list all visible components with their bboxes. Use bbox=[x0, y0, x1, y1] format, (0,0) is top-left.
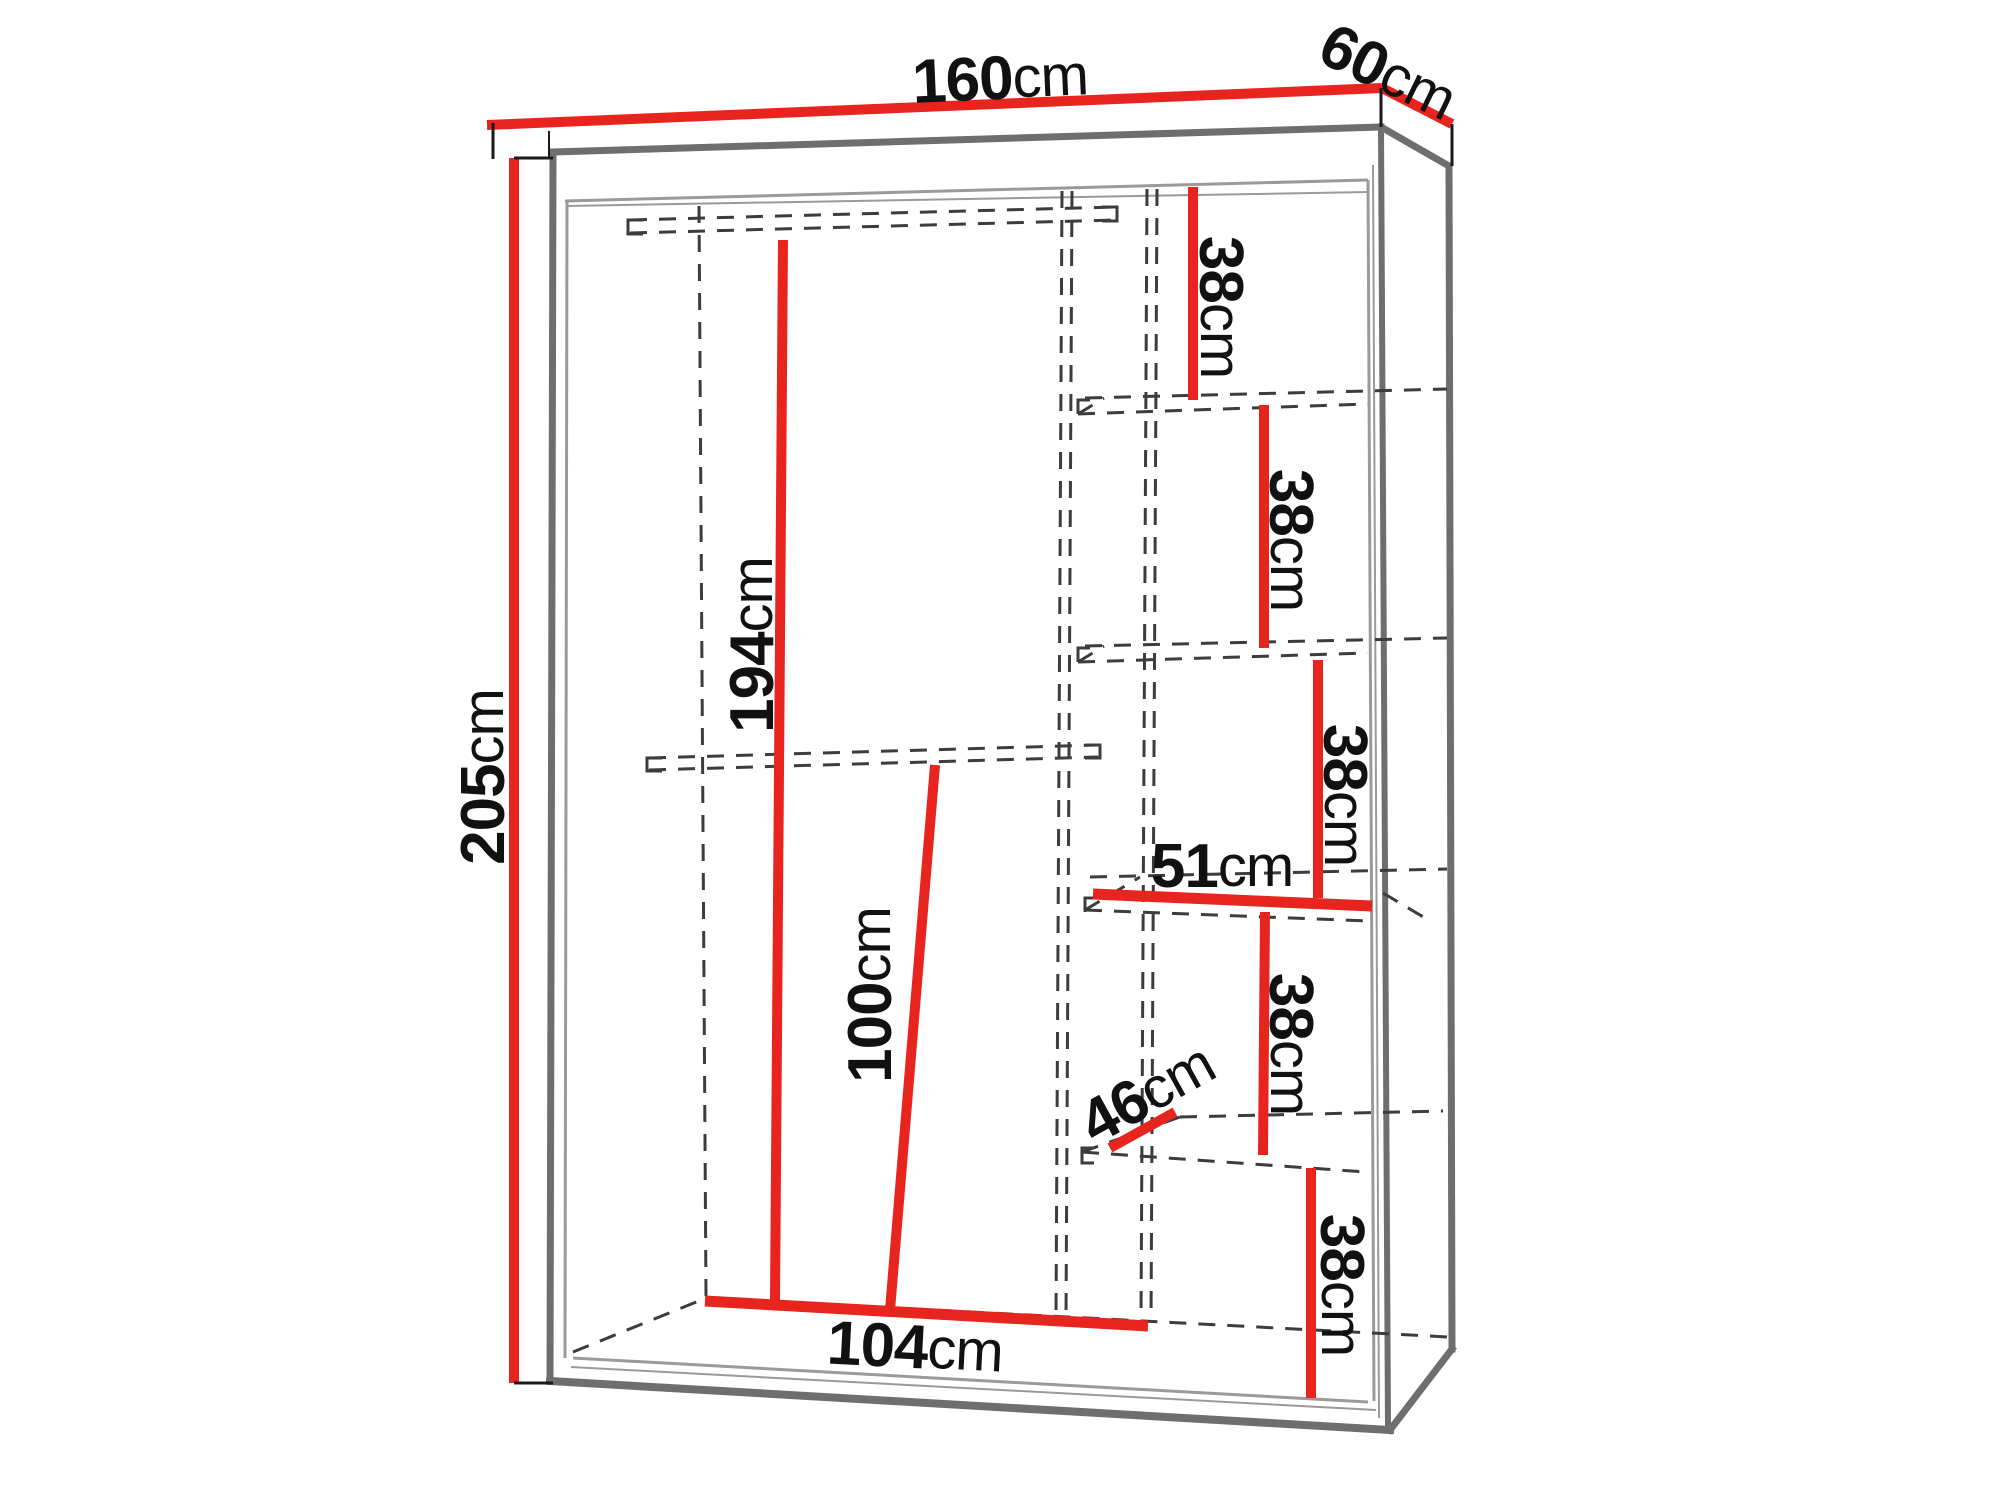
left-shelf-back bbox=[649, 745, 1098, 758]
label-gap1-38cm: 38cm bbox=[1187, 236, 1256, 378]
label-gap2-38cm: 38cm bbox=[1257, 469, 1326, 611]
label-gap5-38cm: 38cm bbox=[1308, 1214, 1377, 1356]
partition-back-line-2 bbox=[1151, 189, 1157, 1322]
dim-line-interior-height-194 bbox=[775, 240, 783, 1300]
side-top-edge bbox=[1381, 127, 1449, 166]
label-height-205cm: 205cm bbox=[449, 689, 518, 865]
shelf1-front bbox=[1078, 404, 1368, 414]
partition-front-line-2 bbox=[1066, 191, 1072, 1317]
front-right-edge bbox=[1381, 127, 1388, 1428]
shelf3-front bbox=[1085, 910, 1368, 921]
front-left-edge bbox=[550, 152, 553, 1381]
left-shelf-front bbox=[649, 757, 1098, 770]
label-interior-width-104cm: 104cm bbox=[825, 1308, 1004, 1386]
back-left-corner-line bbox=[699, 206, 706, 1296]
shelf3-side-edge bbox=[1383, 893, 1425, 918]
label-gap4-38cm: 38cm bbox=[1257, 973, 1326, 1115]
shelf4-front bbox=[1082, 1152, 1366, 1172]
label-width-160cm: 160cm bbox=[911, 40, 1090, 117]
side-back-edge bbox=[1449, 166, 1452, 1349]
side-bottom-edge bbox=[1390, 1349, 1452, 1430]
label-gap3-38cm: 38cm bbox=[1311, 724, 1380, 866]
front-top-edge bbox=[553, 127, 1381, 152]
floor-depth-edge bbox=[573, 1298, 706, 1352]
hanging-rail-bottom bbox=[630, 220, 1115, 233]
label-depth-60cm: 60cm bbox=[1309, 10, 1467, 134]
dimension-lines bbox=[487, 88, 1452, 1398]
diagram-canvas: 160cm 60cm 205cm 194cm 100cm 104cm 51cm … bbox=[0, 0, 2000, 1500]
label-shelf-width-51cm: 51cm bbox=[1151, 832, 1293, 901]
label-interior-height-194cm: 194cm bbox=[718, 557, 787, 733]
partition-front-line-1 bbox=[1056, 191, 1062, 1316]
wardrobe-dimension-diagram: 160cm 60cm 205cm 194cm 100cm 104cm 51cm … bbox=[0, 0, 2000, 1500]
partition-back-line-1 bbox=[1141, 189, 1147, 1320]
label-shelf-depth-46cm: 46cm bbox=[1068, 1028, 1226, 1157]
inner-left-edge bbox=[565, 201, 567, 1358]
inner-ceiling-edge bbox=[565, 180, 1368, 201]
label-lower-height-100cm: 100cm bbox=[836, 907, 905, 1083]
shelf1-back bbox=[1085, 389, 1447, 398]
shelf2-front bbox=[1078, 653, 1368, 662]
hanging-rail-top bbox=[630, 207, 1115, 220]
